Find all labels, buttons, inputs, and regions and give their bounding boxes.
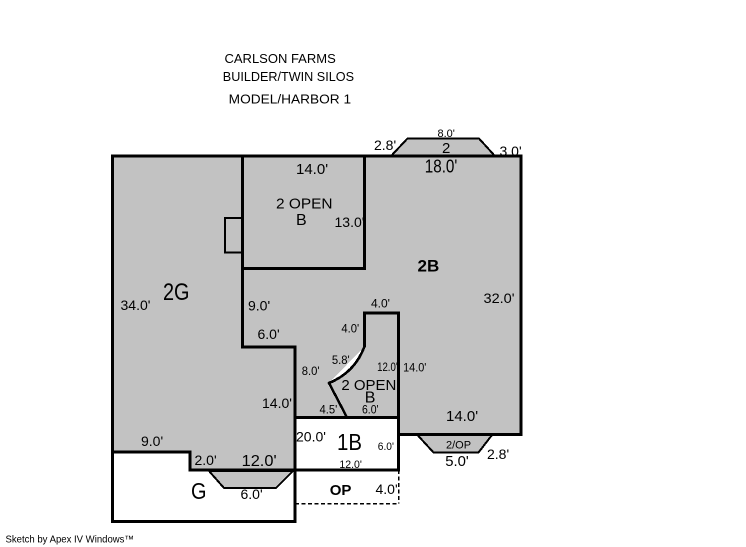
svg-text:B: B [296,212,307,229]
svg-text:14.0': 14.0' [296,161,328,178]
svg-text:2.0': 2.0' [195,452,217,468]
svg-text:8.0': 8.0' [302,364,320,378]
svg-text:34.0': 34.0' [121,297,151,313]
svg-text:9.0': 9.0' [248,298,270,314]
svg-text:8.0': 8.0' [438,128,455,140]
svg-text:OP: OP [330,482,352,499]
svg-text:6.0': 6.0' [241,486,263,502]
svg-text:14.0': 14.0' [403,361,426,375]
svg-text:2/OP: 2/OP [446,440,471,452]
svg-text:3.0': 3.0' [500,143,522,159]
svg-text:CARLSON FARMS: CARLSON FARMS [225,51,337,66]
svg-text:9.0': 9.0' [141,433,163,449]
svg-text:18.0': 18.0' [425,157,458,177]
svg-text:2.8': 2.8' [487,446,509,462]
svg-text:5.0': 5.0' [445,453,469,470]
svg-text:2B: 2B [418,257,440,276]
svg-text:14.0': 14.0' [446,408,478,425]
svg-text:4.0': 4.0' [371,297,390,311]
svg-text:BUILDER/TWIN SILOS: BUILDER/TWIN SILOS [223,69,355,84]
svg-text:4.5': 4.5' [320,402,338,416]
svg-text:32.0': 32.0' [484,290,515,306]
svg-text:2G: 2G [163,279,190,306]
svg-text:13.0': 13.0' [335,214,365,230]
svg-text:12.0': 12.0' [377,360,398,374]
svg-text:Sketch by Apex IV Windows™: Sketch by Apex IV Windows™ [6,535,135,546]
svg-text:B: B [365,390,376,407]
svg-text:6.0': 6.0' [258,326,280,342]
svg-text:2 OPEN: 2 OPEN [276,196,333,213]
svg-text:14.0': 14.0' [262,395,292,411]
svg-text:12.0': 12.0' [339,459,362,471]
svg-text:6.0': 6.0' [378,441,394,453]
svg-text:4.0': 4.0' [376,481,398,497]
svg-text:20.0': 20.0' [296,429,326,445]
svg-text:2: 2 [442,140,450,157]
svg-text:4.0': 4.0' [341,322,359,336]
svg-text:MODEL/HARBOR 1: MODEL/HARBOR 1 [229,92,351,107]
svg-text:5.8': 5.8' [332,353,350,367]
svg-text:G: G [191,478,207,504]
svg-text:12.0': 12.0' [242,453,277,470]
svg-text:2.8': 2.8' [374,137,396,153]
svg-text:1B: 1B [337,429,362,455]
